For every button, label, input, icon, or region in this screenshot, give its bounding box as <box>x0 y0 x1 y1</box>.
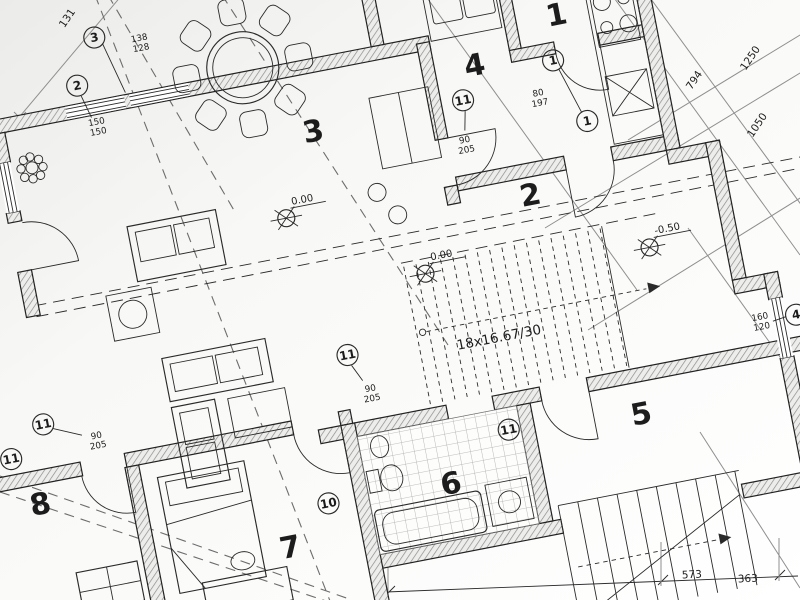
floor-plan-svg: 794 1250 1050 131 573 363 <box>0 0 800 600</box>
dim-label-573: 573 <box>682 568 703 581</box>
marker-number: 4 <box>791 307 800 322</box>
blueprint-photo: 794 1250 1050 131 573 363 <box>0 0 800 600</box>
